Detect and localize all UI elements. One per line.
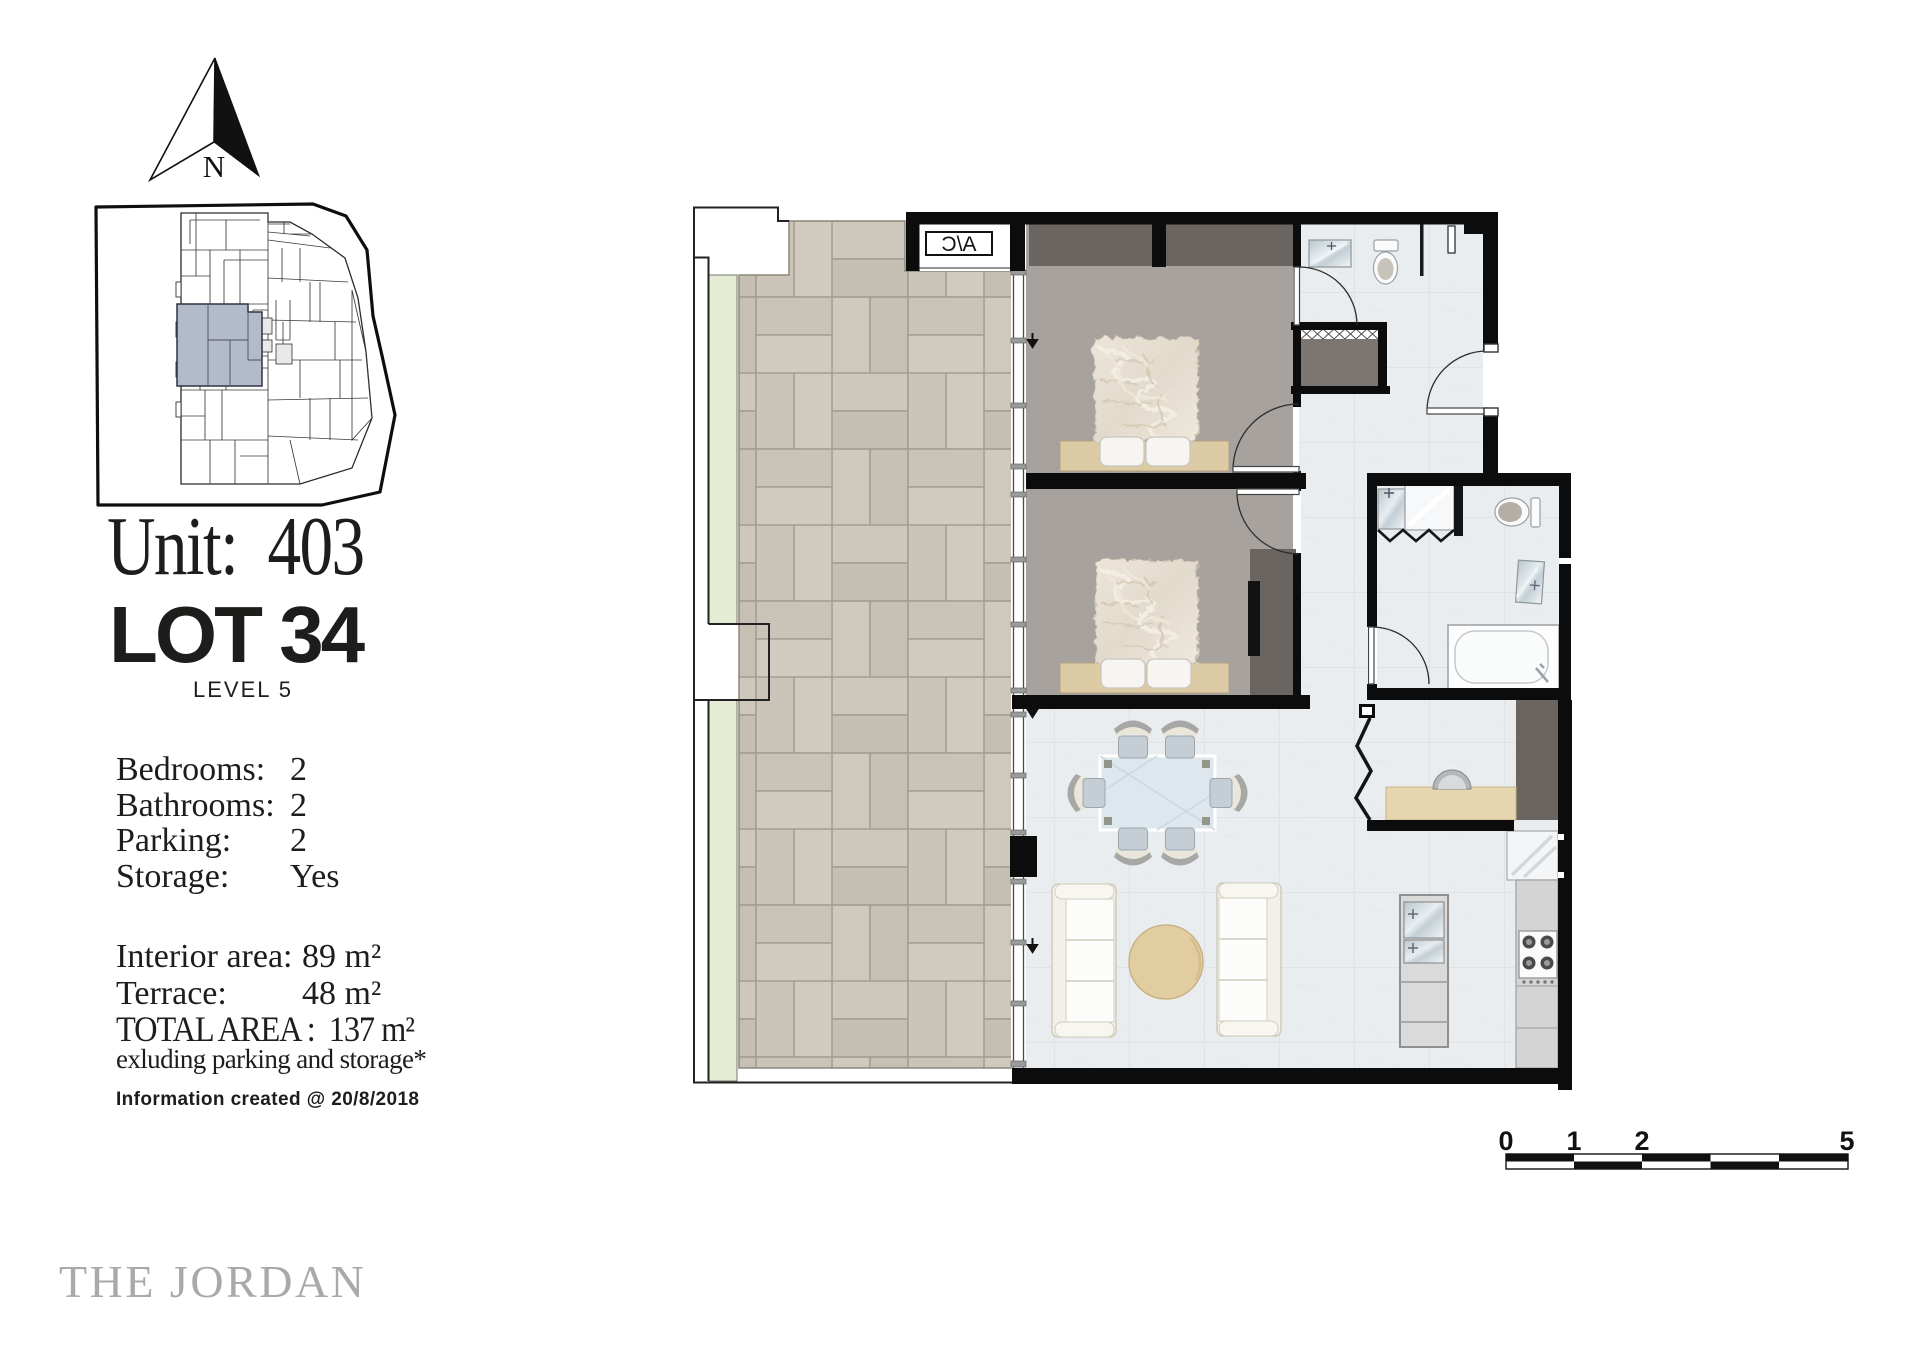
svg-text:0: 0 bbox=[1498, 1126, 1513, 1156]
svg-text:5: 5 bbox=[1839, 1126, 1854, 1156]
svg-text:N: N bbox=[203, 149, 225, 184]
svg-text:2: 2 bbox=[1634, 1126, 1649, 1156]
svg-text:A/C: A/C bbox=[941, 233, 976, 256]
svg-text:1: 1 bbox=[1566, 1126, 1581, 1156]
